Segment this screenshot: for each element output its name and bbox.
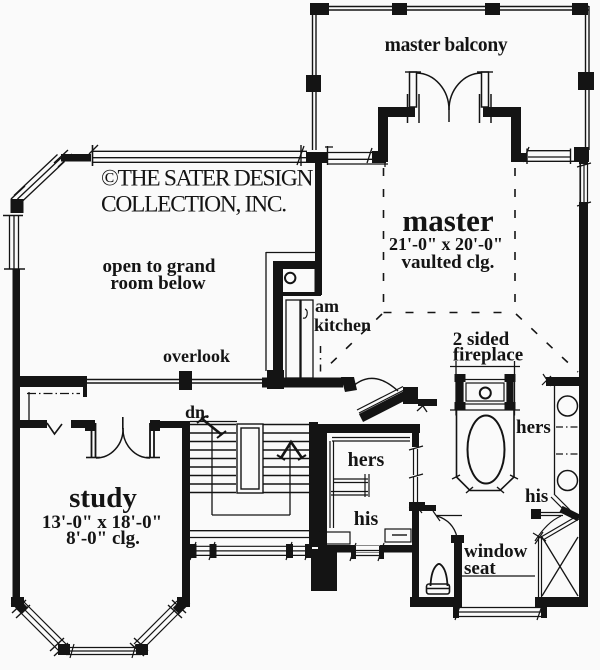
svg-text:hers: hers (516, 417, 551, 438)
svg-text:overlook: overlook (163, 346, 230, 366)
svg-text:master balcony: master balcony (385, 35, 508, 56)
svg-text:hers: hers (348, 449, 385, 471)
svg-text:21'-0" x 20'-0": 21'-0" x 20'-0" (389, 234, 503, 254)
svg-text:master: master (402, 203, 493, 238)
svg-text:8'-0" clg.: 8'-0" clg. (66, 528, 140, 549)
svg-text:am: am (315, 296, 339, 316)
svg-text:dn.: dn. (185, 402, 210, 422)
svg-text:study: study (69, 482, 137, 514)
svg-text:room below: room below (110, 273, 205, 294)
svg-text:kitchen: kitchen (314, 315, 371, 335)
svg-text:fireplace: fireplace (453, 345, 523, 366)
svg-text:COLLECTION, INC.: COLLECTION, INC. (101, 192, 286, 218)
svg-text:vaulted clg.: vaulted clg. (402, 252, 495, 273)
svg-text:©THE SATER DESIGN: ©THE SATER DESIGN (101, 166, 313, 192)
svg-text:his: his (525, 486, 548, 507)
svg-text:his: his (354, 508, 379, 530)
